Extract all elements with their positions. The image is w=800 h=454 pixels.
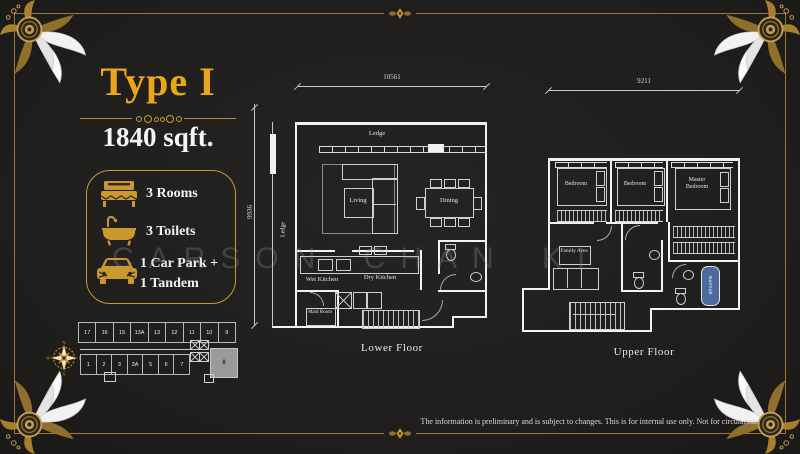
dimension-tick: [736, 87, 743, 94]
room-label-ledge: Ledge: [337, 130, 417, 137]
key-plan-unit: 13A: [131, 322, 148, 343]
wall: [650, 308, 740, 310]
wall: [438, 240, 487, 242]
corner-wing-ornament: [708, 362, 800, 454]
stairs: [569, 302, 625, 330]
sofa-cushion-line: [581, 268, 582, 288]
key-plan-top-row: 17 16 15 13A 13 12 11 10 9: [78, 322, 236, 343]
room-label-living: Living: [340, 197, 376, 204]
room-label-maid-room: Maid Room: [307, 310, 333, 316]
bathtub-label: Bathtub: [708, 276, 713, 295]
wall: [621, 222, 623, 292]
room-label-wet-kitchen: Wet Kitchen: [304, 276, 340, 283]
room-label-dry-kitchen: Dry Kitchen: [358, 274, 402, 281]
wall: [668, 222, 670, 262]
key-plan: 17 16 15 13A 13 12 11 10 9 1 2 3 3A 5 6 …: [78, 322, 236, 382]
wall: [295, 290, 339, 292]
stool: [374, 246, 387, 255]
wall: [666, 158, 668, 222]
wall: [270, 134, 276, 174]
bathtub: Bathtub: [701, 266, 720, 306]
dimension-line: [254, 104, 255, 326]
window-wall: [319, 146, 485, 153]
key-plan-unit: 3A: [128, 354, 144, 375]
pillow: [720, 188, 729, 203]
pillow: [720, 172, 729, 187]
wall: [428, 144, 444, 152]
dimension-line: [298, 86, 487, 87]
dimension-line: [549, 90, 740, 91]
compass-s: S: [63, 372, 66, 377]
bottom-center-ornament: [384, 427, 416, 440]
amenity-carpark-label: 1 Car Park +: [140, 256, 218, 272]
pillow: [596, 187, 605, 202]
wall: [548, 158, 550, 290]
key-plan-unit: 17: [78, 322, 96, 343]
wall: [738, 158, 740, 310]
chair: [473, 197, 482, 210]
disclaimer-text: The information is preliminary and is su…: [421, 417, 758, 426]
dimension-width: 9211: [548, 77, 740, 85]
bathtub-icon: [102, 216, 136, 246]
floor-label-upper: Upper Floor: [548, 346, 740, 358]
chair: [444, 179, 456, 188]
shaft-icon: [335, 292, 352, 309]
room-label-dining: Dining: [429, 197, 469, 204]
dimension-tick: [251, 322, 258, 329]
sink-icon: [470, 272, 482, 282]
top-center-ornament: [384, 7, 416, 20]
chair: [416, 197, 425, 210]
pillow: [596, 171, 605, 186]
key-plan-unit: 6: [159, 354, 175, 375]
amenity-rooms-label: 3 Rooms: [146, 186, 198, 202]
key-plan-unit: 9: [219, 322, 236, 343]
room-label-bedroom: Bedroom: [558, 181, 594, 188]
unit-area: 1840 sqft.: [68, 122, 248, 153]
key-plan-unit: 12: [166, 322, 183, 343]
wall: [438, 240, 440, 274]
toilet-icon: [634, 277, 644, 289]
sofa-cushion-line: [567, 268, 568, 288]
wall: [522, 288, 550, 290]
wardrobe: [615, 210, 663, 222]
wardrobe: [673, 242, 735, 254]
key-plan-corridor-line: [80, 349, 208, 350]
stool: [359, 246, 372, 255]
room-label-family-area: Family Area: [560, 248, 588, 254]
amenity-tandem-label: 1 Tandem: [140, 276, 199, 292]
compass-rose: N E S W: [46, 340, 82, 376]
wall: [661, 240, 663, 292]
wall: [548, 222, 594, 224]
service-stub: [204, 374, 214, 383]
door-arc: [625, 225, 640, 240]
door-arc: [672, 264, 686, 278]
wall: [606, 222, 658, 224]
page-title: Type I: [68, 58, 248, 105]
compass-w: W: [46, 356, 51, 361]
wall: [548, 158, 740, 161]
car-icon: [96, 254, 138, 286]
key-plan-unit: 16: [96, 322, 113, 343]
sofa: [553, 268, 599, 290]
wall: [452, 316, 487, 318]
wardrobe: [673, 226, 735, 238]
sink-icon: [318, 259, 333, 271]
sink-icon: [649, 250, 660, 260]
room-label-bedroom: Bedroom: [618, 181, 652, 188]
key-plan-unit: 1: [80, 354, 97, 375]
dimension-tick: [483, 83, 490, 90]
pillow: [654, 171, 663, 186]
wall: [420, 250, 422, 290]
key-plan-unit: 5: [143, 354, 159, 375]
key-plan-unit: 7: [174, 354, 190, 375]
wall: [522, 330, 652, 332]
dimension-height: 9936: [246, 194, 254, 230]
lower-floor-plan: 10561 9936 Ledge Ledge Living: [262, 76, 512, 366]
upper-floor-plan: 9211 Bedroom Bedroom Mas: [515, 80, 767, 370]
car-lift-stub: [104, 372, 116, 382]
lift-icon: [199, 340, 209, 350]
wall: [485, 122, 487, 318]
stairs: [362, 310, 420, 329]
appliance: [367, 292, 382, 309]
stairs-arrow: [573, 314, 615, 315]
compass-n: N: [62, 340, 66, 345]
chair: [430, 179, 442, 188]
toilet-icon: [446, 249, 456, 261]
sofa: [372, 178, 398, 234]
wall: [295, 122, 297, 328]
pillow: [654, 187, 663, 202]
door-arc: [422, 300, 443, 321]
lift-icon: [199, 352, 209, 362]
door-arc: [597, 226, 612, 241]
brochure-page: Type I 1840 sqft. 3 Rooms 3 T: [0, 0, 800, 454]
wall: [295, 250, 335, 252]
toilet-icon: [676, 293, 686, 305]
wall: [668, 260, 738, 262]
room-label-ledge: Ledge: [281, 209, 288, 249]
wall: [295, 122, 487, 125]
key-plan-bottom-row: 1 2 3 3A 5 6 7: [80, 354, 190, 375]
door-arc: [310, 292, 324, 306]
bed-icon: [100, 181, 138, 208]
wardrobe: [557, 210, 607, 222]
appliance: [353, 292, 367, 309]
chair: [444, 218, 456, 227]
stove-icon: [336, 259, 351, 271]
door-arc: [440, 274, 456, 290]
wall: [610, 158, 612, 222]
chair: [430, 218, 442, 227]
chair: [458, 218, 470, 227]
dimension-width: 10561: [297, 73, 487, 81]
key-plan-unit: 15: [114, 322, 131, 343]
room-label-master-bedroom: Master Bedroom: [677, 177, 717, 191]
wall: [621, 290, 663, 292]
wall: [438, 290, 487, 292]
chair: [458, 179, 470, 188]
key-plan-unit: 13: [149, 322, 166, 343]
wall: [650, 308, 652, 332]
wall: [522, 288, 524, 332]
floor-label-lower: Lower Floor: [297, 342, 487, 354]
key-plan-highlighted-unit: 8: [210, 348, 238, 378]
amenity-toilets-label: 3 Toilets: [146, 224, 195, 240]
